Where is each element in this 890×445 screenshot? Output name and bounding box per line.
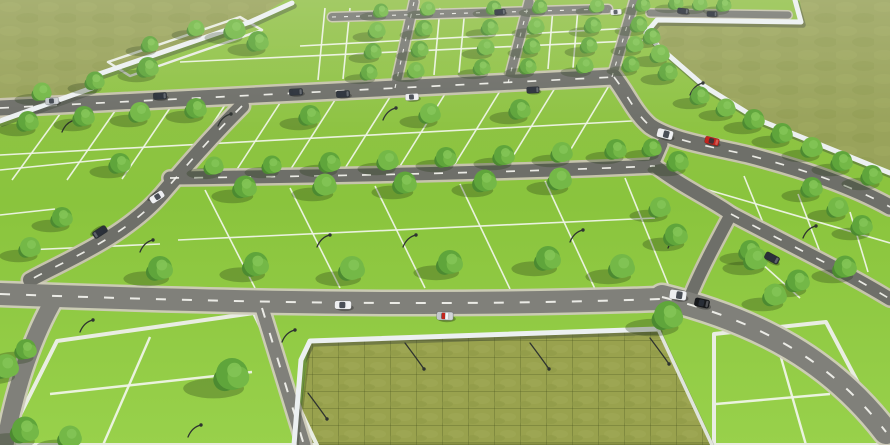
tree-canopy-highlight <box>859 218 868 227</box>
taxi-roof-white <box>445 313 448 319</box>
street-lamp-head <box>547 367 550 370</box>
tree-canopy-highlight <box>649 141 657 149</box>
street-lamp-head <box>581 228 584 231</box>
tree-canopy-highlight <box>675 154 684 163</box>
street-lamp-head <box>293 328 296 331</box>
tree-canopy-highlight <box>252 256 263 267</box>
tree-canopy-highlight <box>501 148 510 157</box>
tree-canopy-highlight <box>23 342 32 351</box>
car-windows <box>676 291 683 299</box>
street-lamp-head <box>422 367 425 370</box>
tree-canopy-highlight <box>227 363 241 377</box>
tree-canopy-highlight <box>327 155 336 164</box>
street-lamp-head <box>414 233 417 236</box>
tree-canopy-highlight <box>664 305 677 318</box>
tree-canopy-highlight <box>117 156 126 165</box>
street-lamp-head <box>814 224 817 227</box>
tree-canopy-highlight <box>839 154 848 163</box>
tree-canopy-highlight <box>385 153 394 162</box>
tree-canopy-highlight <box>809 180 818 189</box>
street-lamp-head <box>667 362 670 365</box>
walled-crop-plot <box>297 329 712 445</box>
tree-canopy-highlight <box>753 251 763 261</box>
tree-canopy-highlight <box>557 171 567 181</box>
tree-canopy-highlight <box>673 227 683 237</box>
tree-canopy-highlight <box>211 159 219 167</box>
tree-canopy-highlight <box>156 260 167 271</box>
tree-canopy-highlight <box>348 260 359 271</box>
street-lamp-head <box>91 318 94 321</box>
tree-canopy-highlight <box>657 200 666 209</box>
tree-canopy-highlight <box>27 240 36 249</box>
tree-canopy-highlight <box>618 258 629 269</box>
car-hood-highlight <box>347 302 350 308</box>
tree-canopy-highlight <box>21 420 33 432</box>
tree-canopy-highlight <box>869 168 878 177</box>
street-lamp-head <box>151 238 154 241</box>
tree-canopy-highlight <box>402 175 412 185</box>
tree-canopy-highlight <box>544 250 555 261</box>
tree-canopy-highlight <box>809 140 818 149</box>
tree-canopy-highlight <box>322 177 332 187</box>
atmosphere-haze <box>0 0 890 130</box>
tree-canopy-highlight <box>443 150 452 159</box>
street-lamp-head <box>199 423 202 426</box>
tree-canopy-highlight <box>482 173 492 183</box>
tree-canopy-highlight <box>242 179 252 189</box>
street-lamp-head <box>325 417 328 420</box>
tree-canopy-highlight <box>2 358 13 369</box>
tree-canopy-highlight <box>59 210 68 219</box>
taxi-roof-red <box>442 313 445 319</box>
tree-canopy-highlight <box>559 145 568 154</box>
tree-canopy-highlight <box>269 158 277 166</box>
street-lamp-head <box>328 233 331 236</box>
car-windows <box>339 302 345 308</box>
tree-canopy-highlight <box>446 254 457 265</box>
scene-canvas <box>0 0 890 445</box>
aerial-development-render: 3D aerial render of a residential plotte… <box>0 0 890 445</box>
tree-canopy-highlight <box>835 200 844 209</box>
tree-canopy-highlight <box>795 273 805 283</box>
car-white-sedan <box>334 301 353 312</box>
tree-canopy-highlight <box>67 429 77 439</box>
tree-canopy-highlight <box>842 259 852 269</box>
main-road-lower <box>0 294 660 303</box>
tree-canopy-highlight <box>772 287 782 297</box>
car-hood-highlight <box>449 313 452 319</box>
tree-canopy-highlight <box>613 142 622 151</box>
